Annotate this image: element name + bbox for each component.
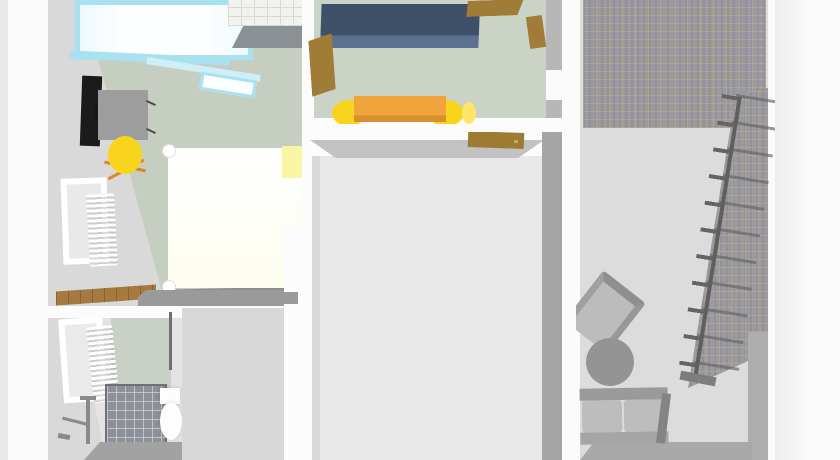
- cabinet-door-left: [308, 33, 336, 97]
- kitchen-right-wall: [546, 0, 562, 118]
- empty-room-left-wall: [312, 156, 320, 460]
- bathroom: [48, 306, 184, 460]
- empty-room: [302, 132, 562, 460]
- sofa-front: [580, 431, 668, 445]
- bedroom-bottom-wall: [138, 290, 302, 306]
- nightstand: [282, 146, 302, 178]
- bathroom-floor-edge: [84, 442, 184, 460]
- empty-room-right-wall: [542, 132, 562, 460]
- counter-front-panel: [232, 26, 302, 48]
- door-handle: [514, 140, 518, 143]
- right-margin-band: [775, 0, 840, 460]
- empty-room-floor: [312, 156, 544, 460]
- round-coffee-table: [586, 338, 634, 386]
- desk: [98, 90, 148, 140]
- washstand-top-bar: [80, 396, 96, 400]
- kitchen-door-gap: [546, 70, 562, 100]
- tiled-counter: [228, 0, 302, 26]
- floorplan-render: [0, 0, 840, 460]
- washstand-post: [86, 398, 90, 444]
- bathroom-top-wall: [48, 306, 184, 318]
- bedroom: [48, 0, 302, 306]
- left-edge-strip: [0, 0, 8, 460]
- yellow-office-chair: [108, 136, 142, 174]
- sofa-cushion: [582, 400, 623, 433]
- bedroom-radiator: [86, 193, 118, 266]
- wall-stub: [280, 292, 298, 304]
- kitchen-counter: [320, 4, 480, 48]
- stair-hall: [576, 0, 775, 460]
- cabinet-door-top-right: [466, 0, 525, 17]
- sofa: [580, 387, 669, 445]
- dining-chair: [462, 102, 476, 124]
- kitchen: [302, 0, 562, 124]
- bathroom-wall-edge: [169, 312, 172, 370]
- dining-table: [354, 96, 446, 122]
- toilet-bowl: [160, 402, 182, 440]
- bed-knob: [162, 144, 176, 158]
- hall-bottom-wall: [580, 442, 752, 460]
- white-wall-divider: [284, 228, 304, 460]
- gray-terrace-zone: [182, 308, 286, 460]
- hall-right-wall: [748, 332, 768, 460]
